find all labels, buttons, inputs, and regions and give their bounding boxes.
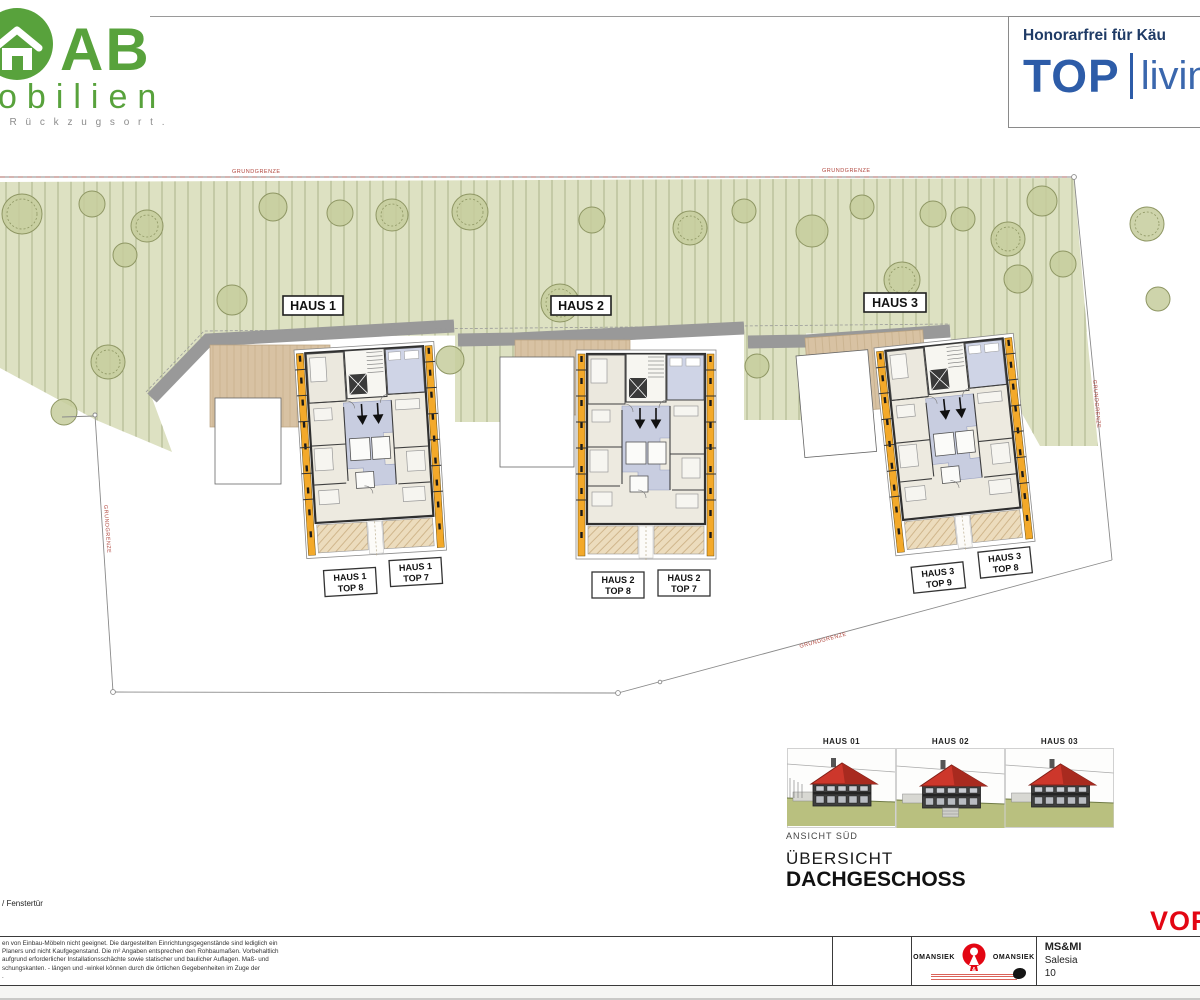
unit-label-h2-top7: HAUS 2 TOP 7: [658, 570, 710, 596]
boundary-label-top-right: GRUNDGRENZE: [822, 168, 871, 174]
house-2-plan: HAUS 2 TOP 8 HAUS 2 TOP 7: [576, 350, 716, 598]
plan-sheet: AB obilien . R ü c k z u g s o r t . Hon…: [0, 0, 1200, 1000]
svg-text:TOP 7: TOP 7: [671, 584, 697, 594]
disclaimer-line: en von Einbau-Möbeln nicht geeignet. Die…: [2, 940, 300, 948]
architect-name-right: OMANSIEK: [993, 954, 1035, 961]
disclaimer-line: aufgrund erforderlicher Installationssch…: [2, 956, 300, 964]
elevation-label-haus01: HAUS 01: [787, 737, 896, 746]
unit-label-h3-top8: HAUS 3 TOP 8: [978, 547, 1032, 578]
svg-text:TOP 8: TOP 8: [605, 586, 631, 596]
svg-text:TOP 7: TOP 7: [403, 572, 429, 584]
vorabzug-stamp: VOR: [1150, 906, 1200, 937]
architect-cell: OMANSIEK & OMANSIEK: [912, 937, 1037, 985]
sheet-bottom-strip: [0, 986, 1200, 1000]
ink-stamp-icon: [1013, 968, 1026, 979]
client-line-3: 10: [1045, 967, 1200, 980]
disclaimer-line: schungskanten. - längen und -winkel könn…: [2, 965, 300, 973]
unit-label-h3-top9: HAUS 3 TOP 9: [911, 562, 965, 593]
window-legend-note: / Fenstertür: [2, 899, 43, 908]
svg-text:HAUS 1: HAUS 1: [399, 561, 433, 573]
architect-name-left: OMANSIEK: [913, 954, 955, 961]
unit-label-h2-top8: HAUS 2 TOP 8: [592, 572, 644, 598]
house-2-label: HAUS 2: [558, 299, 604, 313]
elevation-caption: ANSICHT SÜD: [786, 831, 858, 841]
unit-label-h1-top7: HAUS 1 TOP 7: [389, 557, 442, 586]
svg-text:HAUS 2: HAUS 2: [601, 575, 634, 585]
unit-label-h1-top8: HAUS 1 TOP 8: [324, 567, 377, 596]
svg-text:TOP 8: TOP 8: [338, 582, 364, 594]
svg-text:&: &: [972, 967, 976, 973]
title-block: en von Einbau-Möbeln nicht geeignet. Die…: [0, 936, 1200, 986]
overview-title: ÜBERSICHT: [786, 849, 893, 869]
boundary-label-top-left: GRUNDGRENZE: [232, 169, 281, 175]
disclaimer-line: Planers und nicht Kaufgegenstand. Die m²…: [2, 948, 300, 956]
house-1-label: HAUS 1: [290, 299, 336, 313]
elevation-label-haus02: HAUS 02: [896, 737, 1005, 746]
house-1-plan: HAUS 1 TOP 8 HAUS 1 TOP 7: [294, 341, 449, 597]
boundary-label-bottom: GRUNDGRENZE: [799, 632, 847, 650]
house-3-label: HAUS 3: [872, 296, 918, 310]
client-line-1: MS&MI: [1045, 941, 1200, 954]
house-3-plan: HAUS 3 TOP 9 HAUS 3 TOP 8: [874, 333, 1039, 594]
architect-fineprint: [931, 974, 1017, 980]
elevation-label-haus03: HAUS 03: [1005, 737, 1114, 746]
elevation-drawing: [787, 748, 1114, 828]
floor-title: DACHGESCHOSS: [786, 868, 966, 892]
client-cell: MS&MI Salesia 10: [1037, 937, 1200, 985]
svg-text:HAUS 1: HAUS 1: [333, 571, 367, 583]
svg-text:HAUS 2: HAUS 2: [667, 573, 700, 583]
client-line-2: Salesia: [1045, 954, 1200, 967]
disclaimer-cell: en von Einbau-Möbeln nicht geeignet. Die…: [0, 937, 833, 985]
omansiek-logo: &: [959, 943, 989, 973]
site-plan-drawing: GRUNDGRENZE GRUNDGRENZE: [0, 0, 1200, 1000]
disclaimer-line: .: [2, 973, 300, 981]
empty-cell: [833, 937, 912, 985]
